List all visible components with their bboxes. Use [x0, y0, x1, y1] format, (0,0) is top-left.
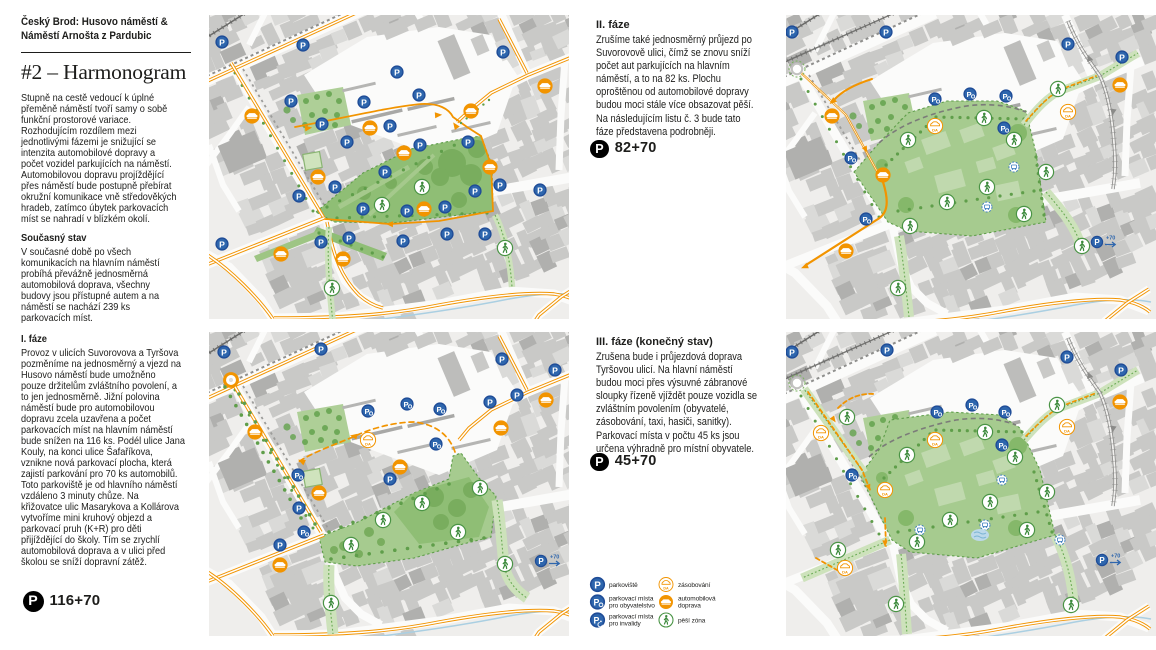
svg-text:parkovací místa: parkovací místa [609, 614, 654, 621]
svg-text:automobilová: automobilová [678, 596, 716, 603]
svg-text:doprava: doprava [678, 603, 701, 610]
svg-text:parkoviště: parkoviště [609, 582, 638, 589]
svg-text:parkovací místa: parkovací místa [609, 596, 654, 603]
svg-text:pro obyvatelstvo: pro obyvatelstvo [609, 603, 655, 610]
svg-text:zásobování: zásobování [678, 582, 711, 589]
svg-text:pro invalidy: pro invalidy [609, 621, 642, 628]
svg-text:pěší zóna: pěší zóna [678, 618, 706, 625]
